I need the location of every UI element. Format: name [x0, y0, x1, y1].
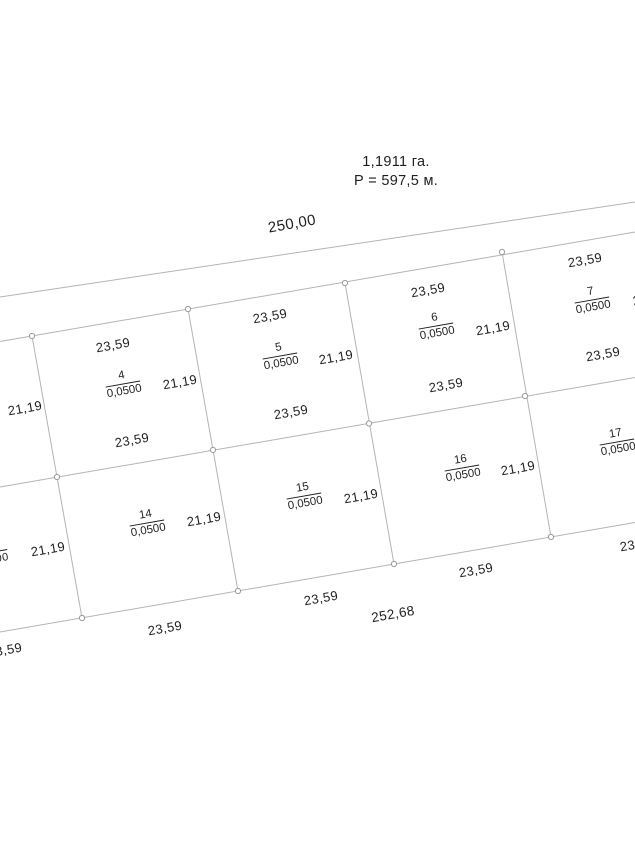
parcel-6-label: 60,0500: [416, 309, 456, 344]
survey-point: [210, 447, 215, 452]
parcel-5-label: 50,0500: [260, 339, 300, 374]
survey-point: [54, 474, 59, 479]
survey-point: [235, 588, 240, 593]
parcel-17-label: 170,0500: [597, 425, 635, 460]
survey-point: [366, 421, 371, 426]
survey-point: [342, 280, 347, 285]
survey-point: [548, 534, 553, 539]
parcel-14-label: 140,0500: [127, 506, 167, 541]
cadastral-plan: 1,1911 га. Р = 597,5 м. 250,00252,6823,5…: [0, 0, 635, 849]
total-area-label: 1,1911 га.: [354, 153, 438, 172]
parcel-4-label: 40,0500: [103, 367, 143, 402]
perimeter-label: Р = 597,5 м.: [354, 172, 438, 191]
parcel-7-label: 70,0500: [572, 283, 612, 318]
survey-geometry: [0, 0, 635, 849]
survey-point: [29, 333, 34, 338]
outer-boundary-top-line: [0, 202, 635, 297]
parcel-row-bottom-line: [0, 523, 635, 633]
parcel-15-label: 150,0500: [284, 479, 324, 514]
survey-point: [185, 306, 190, 311]
survey-point: [522, 393, 527, 398]
survey-point: [79, 615, 84, 620]
parcel-16-label: 160,0500: [442, 451, 482, 486]
plan-title-block: 1,1911 га. Р = 597,5 м.: [354, 153, 438, 191]
survey-point: [499, 249, 504, 254]
survey-point: [391, 561, 396, 566]
parcel-row-top-line: [0, 232, 635, 342]
